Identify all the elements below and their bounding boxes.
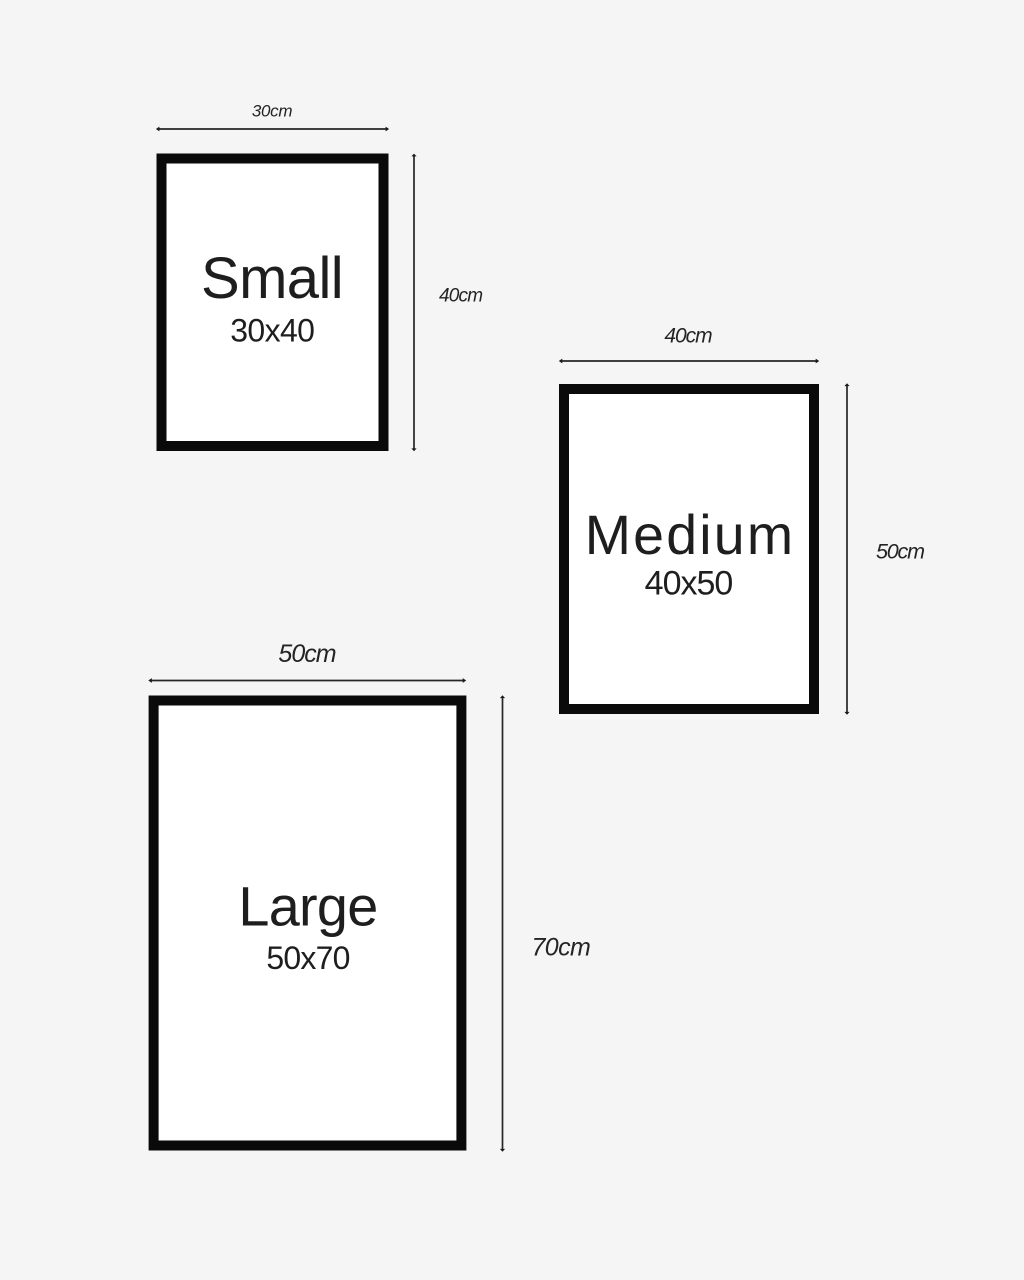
svg-text:30cm: 30cm [252,102,293,121]
svg-text:40cm: 40cm [439,286,482,307]
svg-text:50cm: 50cm [278,640,335,668]
svg-text:40x50: 40x50 [645,565,733,603]
svg-text:30x40: 30x40 [230,313,314,349]
svg-text:40cm: 40cm [664,325,712,348]
svg-text:Small: Small [201,246,343,311]
svg-text:Large: Large [238,875,377,938]
svg-text:Medium: Medium [585,504,796,566]
svg-text:50x70: 50x70 [266,940,349,976]
svg-text:50cm: 50cm [876,540,924,564]
svg-text:70cm: 70cm [532,934,591,962]
